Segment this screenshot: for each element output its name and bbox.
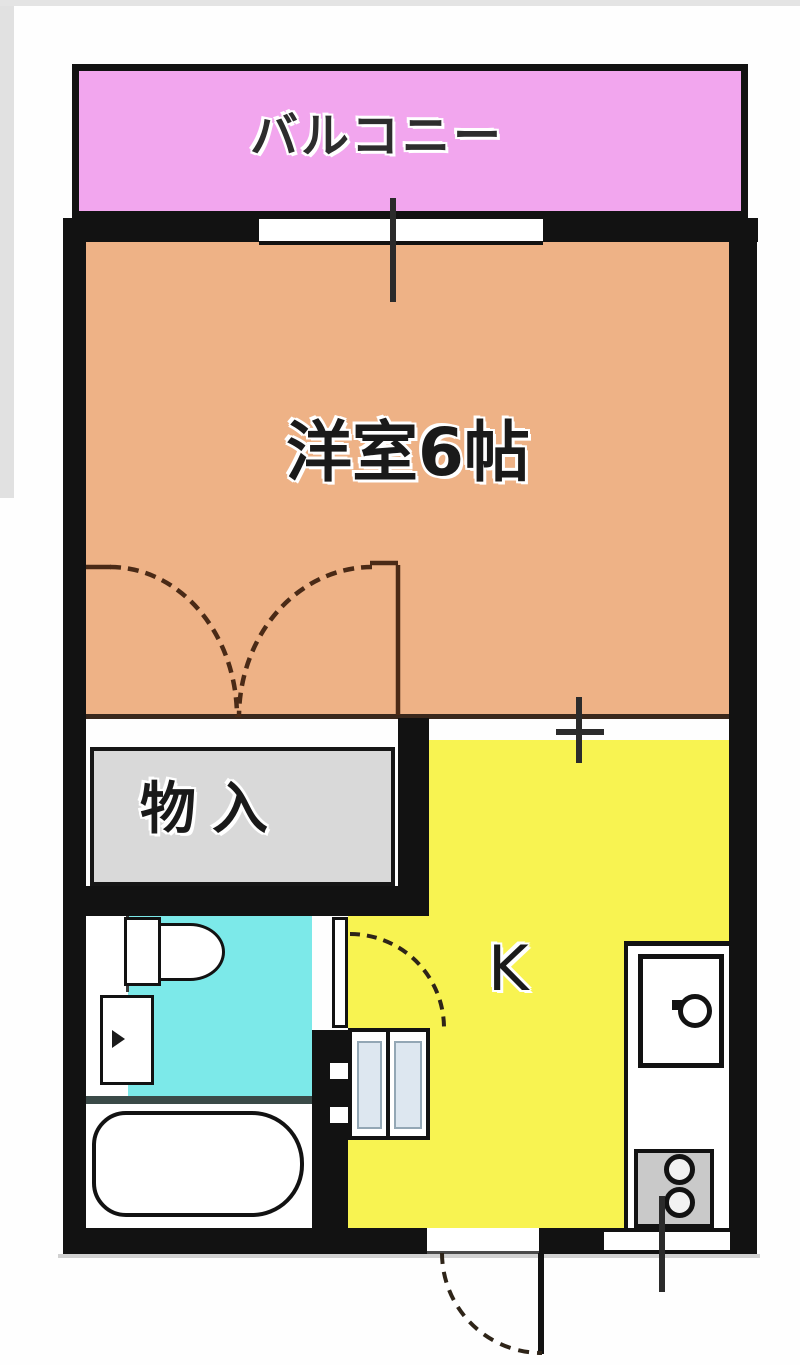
- bath-door-leaf: [332, 917, 348, 1028]
- washer-space: [348, 1028, 430, 1140]
- entrance-door-arc: [442, 1253, 542, 1353]
- washbasin-faucet-icon: [112, 1030, 125, 1048]
- wall-notch-lower: [330, 1107, 348, 1123]
- outer-wall-left: [63, 218, 86, 1254]
- bathtub: [92, 1111, 304, 1217]
- washer-space-panel-left: [357, 1041, 382, 1129]
- outer-wall-right: [729, 218, 757, 1254]
- photo-edge-left: [0, 6, 14, 498]
- room-kitchen-opening-tick-h: [556, 729, 604, 735]
- washbasin: [100, 995, 154, 1085]
- stove-burner-top: [664, 1154, 695, 1185]
- closet-label: 物入: [140, 782, 284, 838]
- kitchen-label: K: [488, 938, 529, 1000]
- western-room-label: 洋室6帖: [286, 420, 530, 486]
- bath-kitchen-wall: [312, 1030, 348, 1228]
- balcony-window: [259, 215, 543, 245]
- entrance-door-leaf: [538, 1253, 544, 1354]
- closet-bottom-wall: [63, 886, 430, 916]
- floor-plan: バルコニー 洋室6帖 物入 K: [0, 0, 800, 1365]
- balcony-window-tick: [390, 198, 396, 302]
- bath-divider-line: [86, 1096, 312, 1104]
- kitchen-area-upper: [429, 740, 729, 916]
- toilet-bowl: [158, 923, 225, 981]
- washer-space-divider: [386, 1032, 390, 1136]
- washer-space-panel-right: [394, 1041, 422, 1129]
- sink-faucet-icon: [678, 994, 712, 1028]
- wall-notch-upper: [330, 1063, 348, 1079]
- kitchen-window-tick: [659, 1196, 665, 1292]
- sink-faucet-notch: [672, 1000, 682, 1010]
- photo-edge-top: [0, 0, 800, 6]
- toilet-tank: [124, 917, 161, 986]
- balcony-label: バルコニー: [250, 112, 504, 160]
- kitchen-window: [604, 1228, 730, 1254]
- entrance-opening: [427, 1228, 539, 1254]
- wall-shadow-bottom: [58, 1254, 760, 1258]
- stove-burner-bottom: [664, 1187, 695, 1218]
